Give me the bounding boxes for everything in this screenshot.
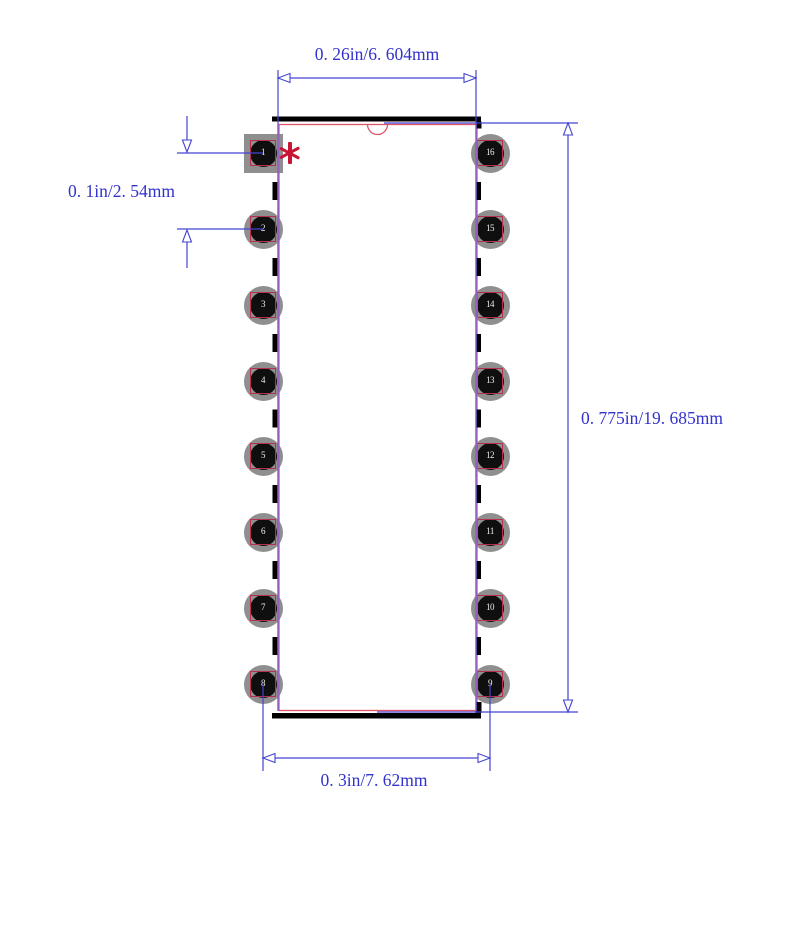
body-edges-black	[272, 117, 482, 719]
dimension-lines-blue	[177, 70, 578, 771]
extension-lines-purple	[278, 124, 476, 711]
body-outline-red	[279, 125, 477, 711]
dimension-label-pin-pitch: 0. 1in/2. 54mm	[68, 182, 175, 201]
dimension-label-row-spacing: 0. 3in/7. 62mm	[321, 771, 428, 790]
dimension-label-body-width: 0. 26in/6. 604mm	[315, 45, 439, 64]
dimension-linework	[0, 0, 800, 937]
footprint-diagram: 12345678161514131211109	[0, 0, 800, 937]
dimension-arrowheads	[183, 74, 573, 763]
dimension-label-body-length: 0. 775in/19. 685mm	[581, 409, 723, 428]
pin1-notch-icon	[368, 125, 388, 135]
